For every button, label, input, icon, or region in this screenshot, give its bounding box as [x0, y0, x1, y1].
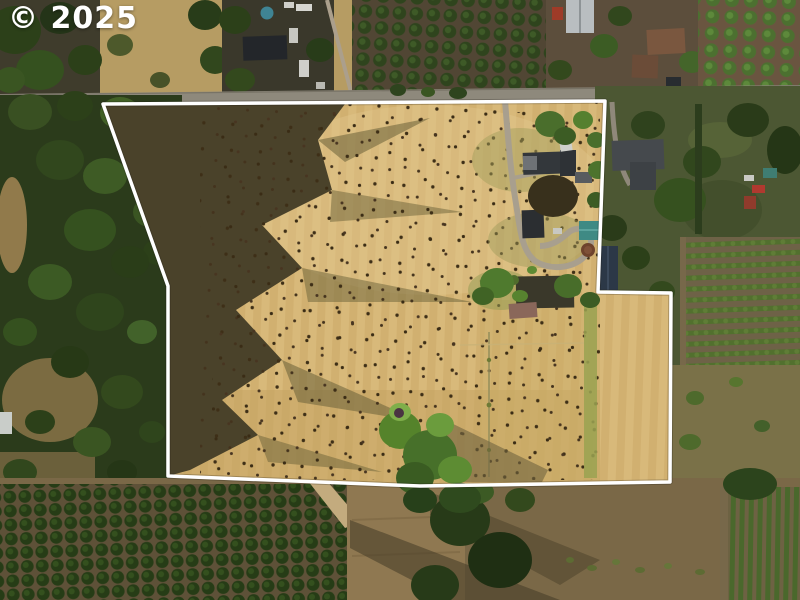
small-white-house	[0, 412, 12, 434]
roadside-bush	[390, 84, 406, 96]
roadside-bush	[449, 87, 467, 99]
aerial-photo-viewport: © 2025	[0, 0, 800, 600]
white-truck	[744, 175, 754, 181]
red-shed	[744, 196, 756, 209]
tree-cluster	[723, 468, 777, 500]
north-house-roof	[243, 35, 288, 61]
red-car	[752, 185, 765, 193]
dark-red-bush	[394, 408, 404, 418]
aerial-scene	[0, 0, 800, 600]
white-vehicle	[284, 2, 294, 8]
garden-shed	[509, 302, 538, 319]
northeast-orchard	[698, 0, 800, 90]
dark-vehicle	[666, 77, 681, 87]
brown-roof-house-2	[632, 55, 659, 79]
red-roof-shed	[552, 7, 563, 20]
north-orchard	[352, 0, 546, 93]
north-farmstead	[546, 0, 705, 92]
copyright-watermark: © 2025	[8, 2, 138, 35]
main-house-wing	[560, 150, 576, 176]
white-trailer	[299, 60, 309, 77]
brown-roof-house	[646, 28, 685, 55]
teal-trailer	[763, 168, 777, 178]
north-neighbor-house-lot	[219, 0, 334, 96]
row-crop-field	[728, 487, 800, 600]
round-pool	[261, 7, 274, 20]
weedy-fence-strip	[584, 294, 597, 478]
white-van	[289, 28, 298, 43]
south-orchard	[0, 484, 350, 600]
vineyard-rows	[686, 237, 800, 367]
white-rv	[296, 4, 312, 11]
dark-copper-tree	[528, 175, 578, 217]
east-neighbor-house-wing	[630, 162, 656, 190]
hedge-row	[695, 104, 702, 234]
white-car	[553, 228, 562, 234]
roadside-bush	[421, 87, 435, 97]
white-car	[316, 82, 325, 89]
